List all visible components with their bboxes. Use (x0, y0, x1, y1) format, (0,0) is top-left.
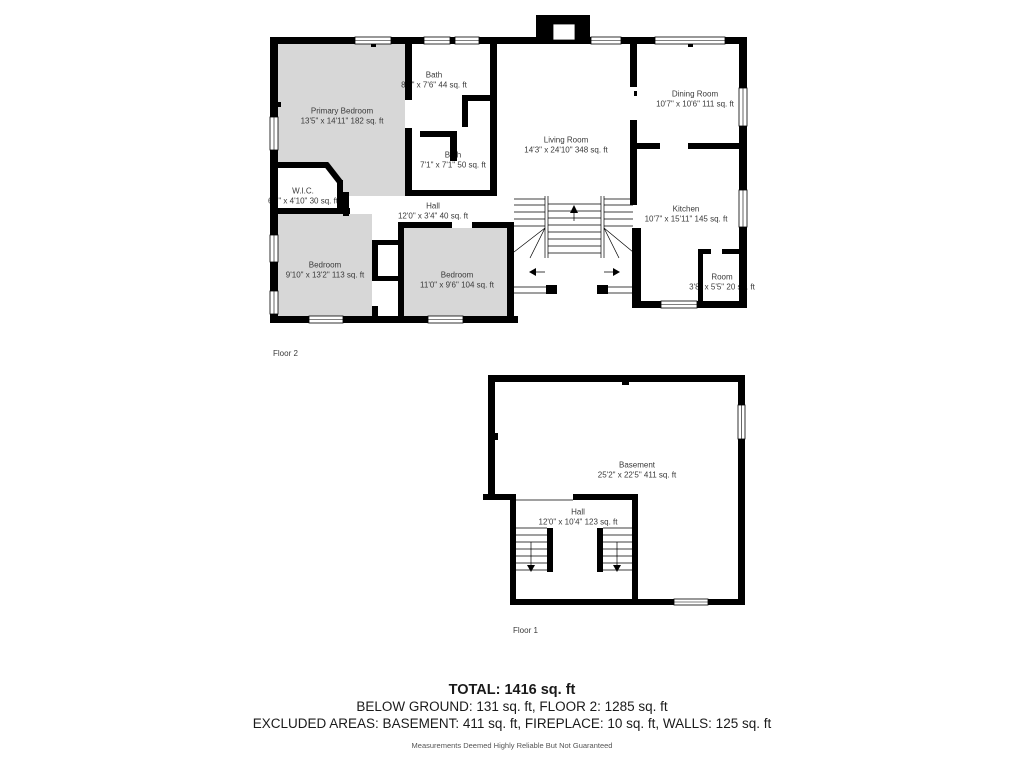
room-label-primary-bedroom: Primary Bedroom 13'5" x 14'11" 182 sq. f… (301, 107, 384, 128)
room-dims: 14'3" x 24'10" 348 sq. ft (524, 146, 607, 156)
room-label-dining-room: Dining Room 10'7" x 10'6" 111 sq. ft (656, 90, 734, 111)
room-label-bath-2: Bath 7'1" x 7'1" 50 sq. ft (420, 151, 486, 172)
room-name: Bedroom (420, 271, 494, 281)
room-label-bath-1: Bath 8'2" x 7'6" 44 sq. ft (401, 71, 467, 92)
area-summary: TOTAL: 1416 sq. ft BELOW GROUND: 131 sq.… (0, 681, 1024, 750)
room-label-room: Room 3'8" x 5'5" 20 sq. ft (689, 273, 755, 294)
room-name: Bath (420, 151, 486, 161)
floor-plan-page: Primary Bedroom 13'5" x 14'11" 182 sq. f… (0, 0, 1024, 768)
room-name: Hall (398, 202, 468, 212)
floor-areas-text: BELOW GROUND: 131 sq. ft, FLOOR 2: 1285 … (0, 699, 1024, 715)
room-dims: 12'0" x 10'4" 123 sq. ft (538, 518, 617, 528)
room-label-bedroom-left: Bedroom 9'10" x 13'2" 113 sq. ft (286, 261, 364, 282)
room-dims: 13'5" x 14'11" 182 sq. ft (301, 117, 384, 127)
room-name: Bedroom (286, 261, 364, 271)
room-label-living-room: Living Room 14'3" x 24'10" 348 sq. ft (524, 136, 607, 157)
room-name: Primary Bedroom (301, 107, 384, 117)
room-name: Dining Room (656, 90, 734, 100)
room-dims: 25'2" x 22'5" 411 sq. ft (598, 471, 676, 481)
room-name: Kitchen (645, 205, 728, 215)
room-name: Basement (598, 461, 676, 471)
room-name: Bath (401, 71, 467, 81)
room-label-kitchen: Kitchen 10'7" x 15'11" 145 sq. ft (645, 205, 728, 226)
excluded-areas-text: EXCLUDED AREAS: BASEMENT: 411 sq. ft, FI… (0, 716, 1024, 732)
room-label-hall-floor2: Hall 12'0" x 3'4" 40 sq. ft (398, 202, 468, 223)
floor2-label: Floor 2 (273, 349, 298, 358)
disclaimer-text: Measurements Deemed Highly Reliable But … (0, 741, 1024, 750)
room-name: W.I.C. (268, 187, 338, 197)
room-name: Hall (538, 508, 617, 518)
labels-layer: Primary Bedroom 13'5" x 14'11" 182 sq. f… (0, 0, 1024, 768)
room-dims: 8'2" x 7'6" 44 sq. ft (401, 81, 467, 91)
room-dims: 12'0" x 3'4" 40 sq. ft (398, 212, 468, 222)
room-dims: 10'7" x 15'11" 145 sq. ft (645, 215, 728, 225)
floor1-label: Floor 1 (513, 626, 538, 635)
room-dims: 6'7" x 4'10" 30 sq. ft (268, 197, 338, 207)
room-dims: 11'0" x 9'6" 104 sq. ft (420, 281, 494, 291)
room-label-basement: Basement 25'2" x 22'5" 411 sq. ft (598, 461, 676, 482)
room-dims: 10'7" x 10'6" 111 sq. ft (656, 100, 734, 110)
room-label-wic: W.I.C. 6'7" x 4'10" 30 sq. ft (268, 187, 338, 208)
room-dims: 3'8" x 5'5" 20 sq. ft (689, 283, 755, 293)
room-name: Living Room (524, 136, 607, 146)
room-label-hall-floor1: Hall 12'0" x 10'4" 123 sq. ft (538, 508, 617, 529)
room-dims: 7'1" x 7'1" 50 sq. ft (420, 161, 486, 171)
room-name: Room (689, 273, 755, 283)
room-label-bedroom-middle: Bedroom 11'0" x 9'6" 104 sq. ft (420, 271, 494, 292)
room-dims: 9'10" x 13'2" 113 sq. ft (286, 271, 364, 281)
total-area-text: TOTAL: 1416 sq. ft (0, 681, 1024, 699)
